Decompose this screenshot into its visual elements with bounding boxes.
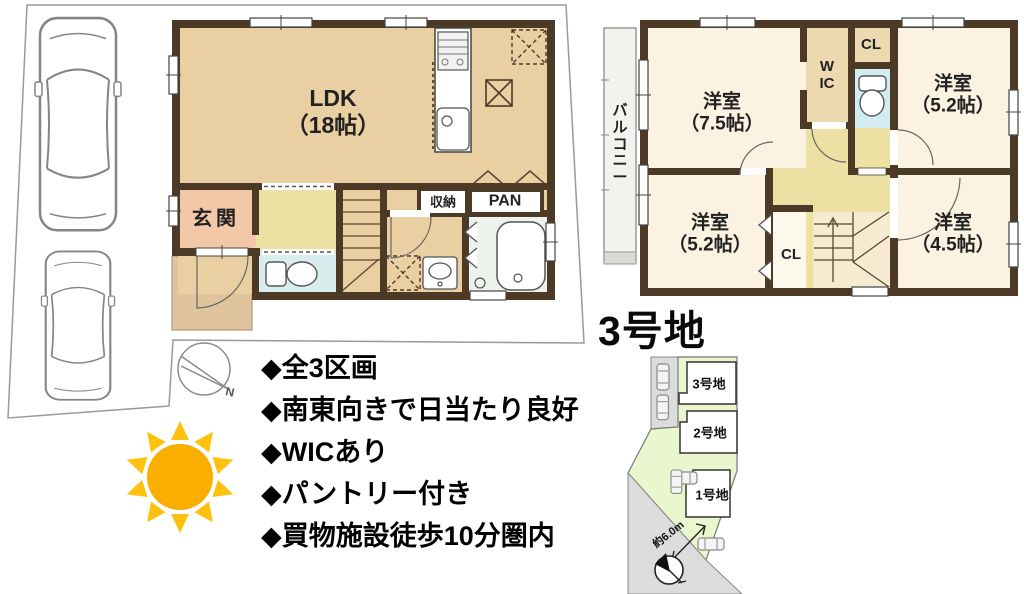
room1-name: 洋室 (680, 92, 763, 114)
site-car-icon (698, 538, 724, 550)
room1-label: 洋室 （7.5帖） (680, 92, 763, 137)
compass-icon (178, 343, 230, 395)
closet-bottom-label: CL (781, 246, 801, 264)
room2-name: 洋室 (911, 74, 994, 96)
entrance-label: 玄関 (192, 208, 240, 232)
washbasin-icon (423, 257, 457, 289)
site-car-icon (657, 395, 668, 420)
site-car-icon (671, 470, 682, 493)
closet-top-label: CL (861, 36, 881, 54)
feature-item: ◆WICあり (261, 431, 579, 473)
room4-label: 洋室 （4.5帖） (911, 213, 994, 258)
balcony-label: バルコニー (612, 103, 629, 187)
feature-item: ◆南東向きで日当たり良好 (261, 389, 579, 431)
ldk-name: LDK (286, 85, 381, 112)
wic-label: WIC (820, 59, 835, 93)
room2-label: 洋室 （5.2帖） (911, 74, 994, 119)
room3-size: （5.2帖） (668, 235, 751, 257)
toilet-icon-2f (859, 76, 886, 116)
feature-list: ◆全3区画 ◆南東向きで日当たり良好 ◆WICあり ◆パントリー付き ◆買物施設… (261, 347, 579, 557)
ldk-size: （18帖） (286, 112, 381, 139)
site-map (628, 357, 742, 594)
car-bottom-icon (41, 251, 114, 399)
car-top-icon (35, 18, 121, 230)
room4-name: 洋室 (911, 213, 994, 235)
kitchen-counter (433, 28, 471, 152)
floorplan-flyer: LDK （18帖） 玄関 収納 PAN 洋室 （7.5帖） 洋室 （5.2帖） … (0, 0, 1024, 594)
site-plot3-label: 3号地 (692, 374, 725, 393)
storage-label: 収納 (430, 194, 456, 209)
sun-icon (124, 421, 236, 533)
site-car-icon (657, 364, 669, 390)
room4-size: （4.5帖） (911, 235, 994, 257)
plot-title: 3号地 (598, 297, 706, 357)
site-plot2-label: 2号地 (693, 423, 726, 442)
feature-item: ◆全3区画 (261, 347, 579, 389)
hall-floor (256, 187, 339, 252)
room3-label: 洋室 （5.2帖） (668, 213, 751, 258)
room3-name: 洋室 (668, 213, 751, 235)
ldk-label: LDK （18帖） (286, 85, 381, 139)
room2-size: （5.2帖） (911, 96, 994, 118)
pantry-label: PAN (489, 193, 522, 212)
feature-item: ◆買物施設徒歩10分圏内 (261, 515, 579, 557)
feature-item: ◆パントリー付き (261, 473, 579, 515)
room1-size: （7.5帖） (680, 114, 763, 136)
site-plot1-label: 1号地 (695, 485, 728, 504)
floor1-plan (166, 15, 558, 330)
toilet-icon-1f (266, 262, 317, 286)
